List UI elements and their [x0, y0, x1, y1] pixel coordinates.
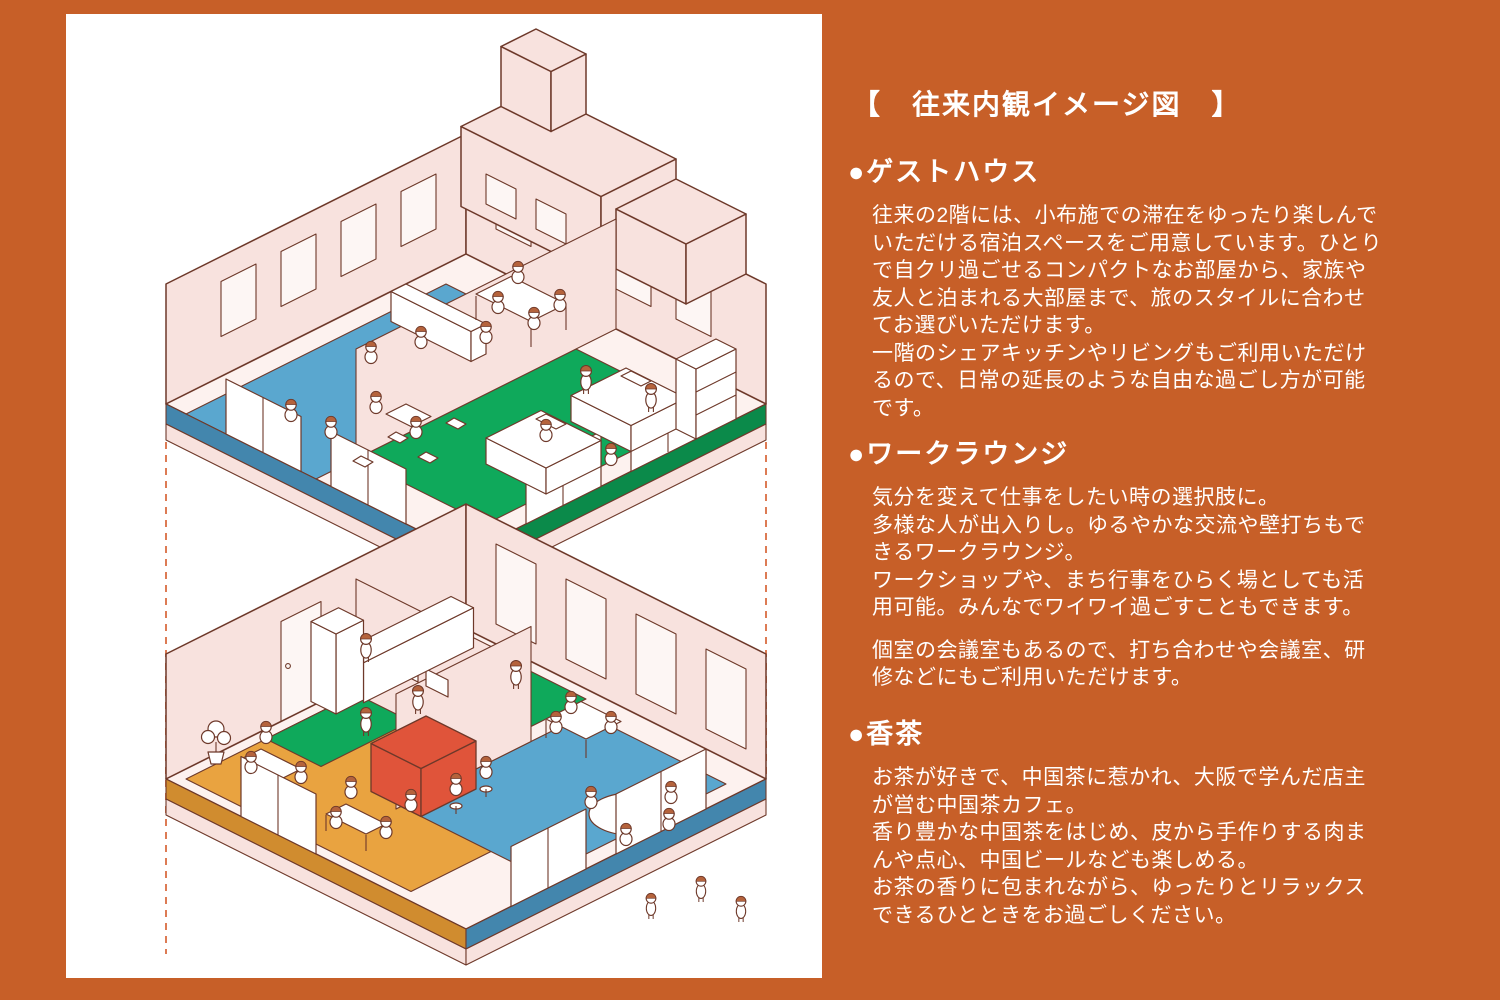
section-koucha: ●香茶 お茶が好きで、中国茶に惹かれ、大阪で学んだ店主 が営む中国茶カフェ。 香…	[848, 712, 1408, 929]
page-title: 【 往来内観イメージ図 】	[852, 83, 1241, 123]
section-guesthouse: ●ゲストハウス 往来の2階には、小布施での滞在をゆったり楽しんで いただける宿泊…	[848, 150, 1408, 422]
illustration-panel	[66, 14, 822, 978]
section-guesthouse-heading: ●ゲストハウス	[848, 150, 1408, 189]
section-guesthouse-body: 往来の2階には、小布施での滞在をゆったり楽しんで いただける宿泊スペースをご用意…	[872, 202, 1392, 422]
section-worklounge-body-2: 個室の会議室もあるので、打ち合わせや会議室、研 修などにもご利用いただけます。	[872, 637, 1392, 692]
section-worklounge: ●ワークラウンジ 気分を変えて仕事をしたい時の選択肢に。 多様な人が出入りし。ゆ…	[848, 432, 1408, 692]
section-worklounge-body-1: 気分を変えて仕事をしたい時の選択肢に。 多様な人が出入りし。ゆるやかな交流や壁打…	[872, 484, 1392, 622]
outside-people	[646, 876, 746, 922]
section-worklounge-heading: ●ワークラウンジ	[848, 432, 1408, 471]
page: 【 往来内観イメージ図 】 ●ゲストハウス 往来の2階には、小布施での滞在をゆっ…	[0, 0, 1500, 1000]
isometric-building-illustration	[66, 14, 822, 978]
floor-1f-lounge-cafe	[166, 504, 766, 965]
section-koucha-heading: ●香茶	[848, 712, 1408, 751]
section-koucha-body: お茶が好きで、中国茶に惹かれ、大阪で学んだ店主 が営む中国茶カフェ。 香り豊かな…	[872, 764, 1392, 929]
